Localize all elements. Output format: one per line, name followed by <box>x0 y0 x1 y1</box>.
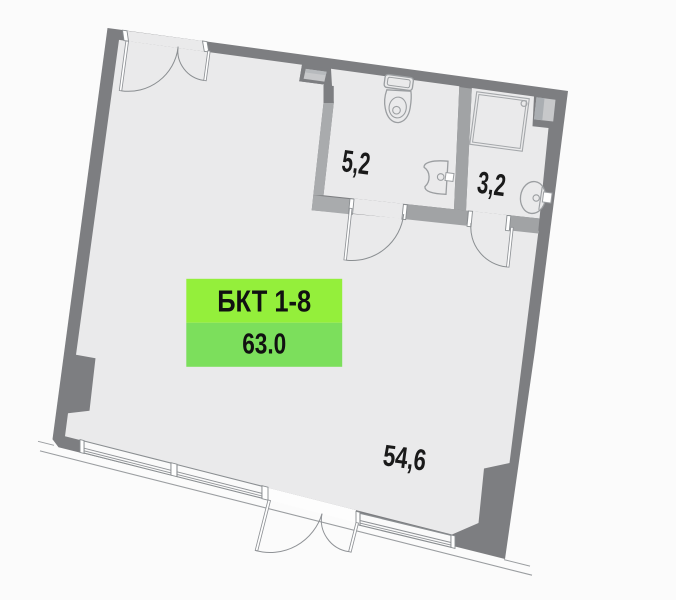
svg-text:63.0: 63.0 <box>242 329 286 361</box>
svg-text:3,2: 3,2 <box>475 165 507 203</box>
svg-text:БКТ 1-8: БКТ 1-8 <box>217 284 311 319</box>
svg-text:5,2: 5,2 <box>340 143 372 181</box>
svg-text:54,6: 54,6 <box>381 439 428 477</box>
